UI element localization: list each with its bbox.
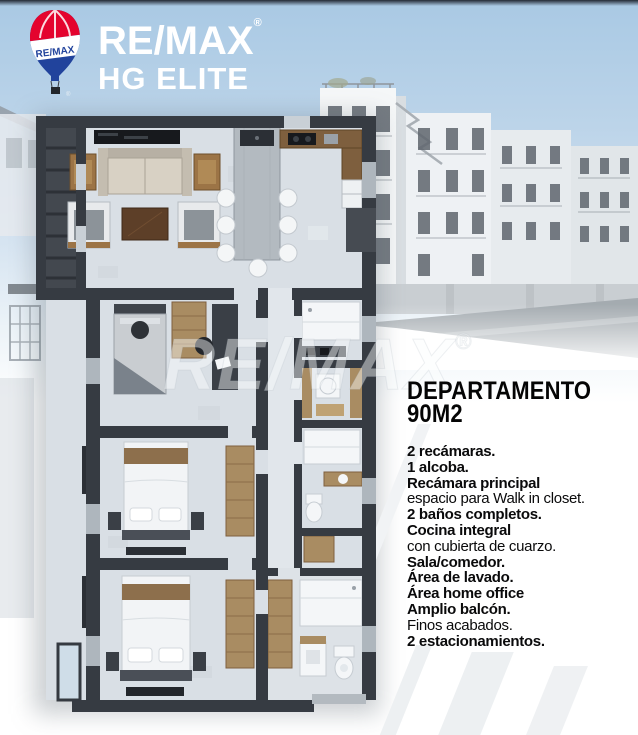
feature-item: 2 baños completos. bbox=[407, 507, 635, 523]
feature-item: 1 alcoba. bbox=[407, 460, 635, 476]
watermark-slash bbox=[438, 652, 514, 735]
floor-plan-illustration bbox=[28, 106, 382, 720]
bathroom-3 bbox=[268, 576, 362, 700]
feature-item: con cubierta de cuarzo. bbox=[407, 539, 635, 555]
listing-title-line2: 90M2 bbox=[407, 403, 608, 426]
flyer-canvas: RE/MAX ® RE/MAX® HG ELITE RE/MAX® DEPART… bbox=[0, 0, 638, 735]
feature-item: Sala/comedor. bbox=[407, 555, 635, 571]
registered-mark: ® bbox=[254, 17, 262, 29]
feature-item: Recámara principal bbox=[407, 476, 635, 492]
brand-wordmark: RE/MAX® HG ELITE bbox=[98, 18, 262, 98]
balloon-basket bbox=[51, 87, 60, 94]
feature-item: 2 estacionamientos. bbox=[407, 634, 635, 650]
feature-item: Cocina integral bbox=[407, 523, 635, 539]
watermark-slash bbox=[526, 666, 588, 735]
feature-item: Finos acabados. bbox=[407, 618, 635, 634]
brand-subtitle: HG ELITE bbox=[98, 63, 262, 95]
registered-mark-small: ® bbox=[66, 91, 71, 98]
listing-info: DEPARTAMENTO 90M2 2 recámaras.1 alcoba.R… bbox=[407, 380, 635, 649]
feature-item: espacio para Walk in closet. bbox=[407, 491, 635, 507]
feature-list: 2 recámaras.1 alcoba.Recámara principale… bbox=[407, 444, 635, 649]
feature-item: 2 recámaras. bbox=[407, 444, 635, 460]
remax-balloon-logo: RE/MAX ® bbox=[24, 8, 86, 98]
feature-item: Amplio balcón. bbox=[407, 602, 635, 618]
top-border-vignette bbox=[0, 0, 638, 6]
feature-item: Área de lavado. bbox=[407, 570, 635, 586]
brand-name: RE/MAX® bbox=[98, 18, 262, 61]
watermark-slash bbox=[380, 645, 432, 735]
brand-header: RE/MAX ® RE/MAX® HG ELITE bbox=[24, 8, 262, 98]
feature-item: Área home office bbox=[407, 586, 635, 602]
